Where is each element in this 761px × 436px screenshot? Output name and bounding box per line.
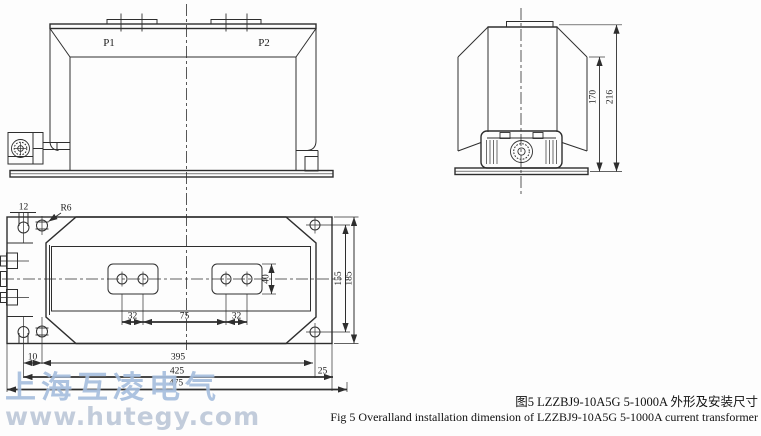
dim-32-75-32: 32 75 32 (122, 294, 247, 325)
dim-label-25: 25 (318, 367, 328, 377)
body-left-wall (50, 28, 59, 151)
terminal-label-p2: P2 (258, 37, 270, 49)
caption-chinese: 图5 LZZBJ9-10A5G 5-1000A 外形及安装尺寸 (330, 395, 758, 410)
dim-label-155: 155 (334, 271, 344, 286)
body-right-wall (308, 28, 317, 151)
dim-label-r6: R6 (60, 204, 71, 214)
dim-label-10: 10 (28, 353, 38, 363)
dim-155-185: 155 185 (334, 217, 359, 344)
top-cap-side (507, 22, 554, 28)
plan-view: 12 R6 40 32 75 32 155 (1, 203, 359, 393)
dim-label-40: 40 (262, 274, 272, 284)
terminal-label-p1: P1 (103, 37, 115, 49)
dim-label-170: 170 (589, 90, 599, 105)
technical-drawing: P1 P2 (0, 0, 761, 436)
dim-label-395: 395 (171, 353, 186, 363)
figure-caption: 图5 LZZBJ9-10A5G 5-1000A 外形及安装尺寸 Fig 5 Ov… (330, 395, 758, 425)
caption-english: Fig 5 Overalland installation dimension … (330, 410, 758, 425)
dim-40: 40 (262, 264, 277, 294)
dim-label-12: 12 (19, 203, 29, 213)
side-dimensions: 170 216 (559, 25, 622, 172)
dim-label-32-left: 32 (128, 312, 138, 322)
dim-label-75: 75 (180, 312, 190, 322)
dim-label-216: 216 (606, 90, 616, 105)
secondary-connectors-plan (1, 243, 34, 317)
side-view: 170 216 (455, 8, 622, 194)
front-view: P1 P2 (8, 14, 333, 178)
secondary-terminal-box-side (481, 131, 562, 168)
dim-label-475: 475 (169, 379, 184, 389)
dim-label-425: 425 (170, 367, 185, 377)
dim-bottom: 10 395 425 25 475 (7, 344, 347, 393)
body-outline-plan (46, 217, 316, 344)
dim-label-185: 185 (345, 271, 355, 286)
dim-label-32-right: 32 (232, 312, 242, 322)
base-plate-plan (7, 217, 332, 344)
secondary-terminal-box-front (8, 133, 70, 165)
top-plate (50, 24, 316, 29)
